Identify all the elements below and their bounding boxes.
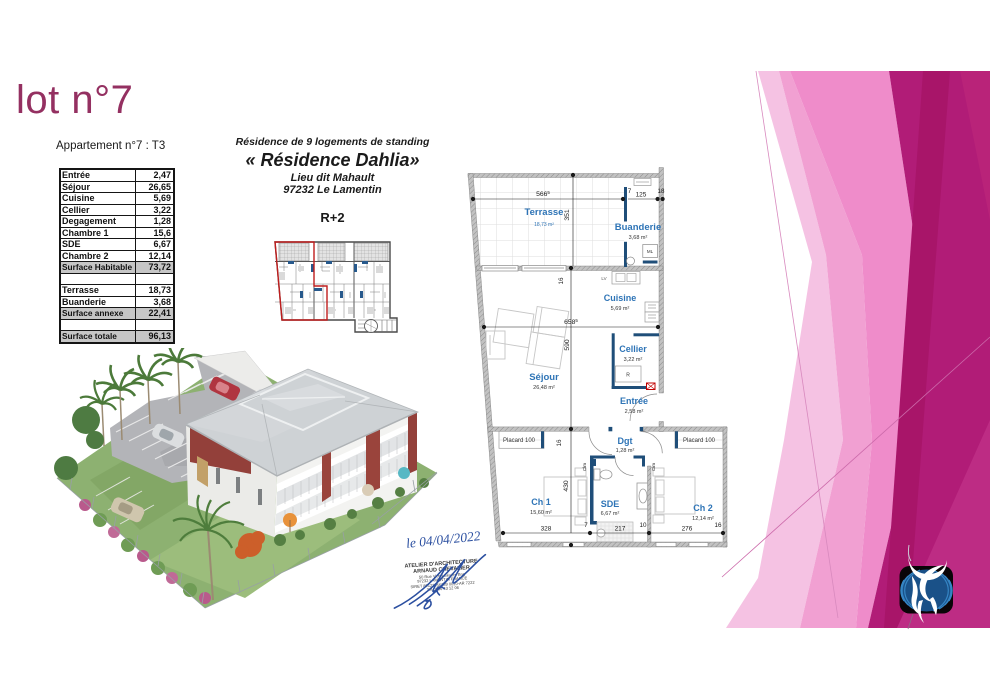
svg-text:Entrée: Entrée	[620, 396, 648, 406]
svg-text:Ch 1: Ch 1	[531, 497, 551, 507]
svg-text:ML: ML	[647, 249, 654, 254]
svg-text:18: 18	[657, 188, 665, 195]
svg-text:LV: LV	[601, 276, 606, 281]
svg-text:Terrasse: Terrasse	[525, 207, 564, 218]
svg-text:Ch 2: Ch 2	[693, 503, 713, 513]
svg-text:15,60 m²: 15,60 m²	[530, 510, 552, 516]
svg-text:276: 276	[682, 526, 693, 533]
svg-text:SDE: SDE	[601, 499, 620, 509]
svg-text:5,69 m²: 5,69 m²	[611, 306, 630, 312]
svg-text:26,48 m²: 26,48 m²	[533, 385, 555, 391]
svg-text:Buanderie: Buanderie	[615, 222, 661, 233]
svg-text:7: 7	[584, 522, 588, 529]
svg-text:Cellier: Cellier	[619, 344, 647, 354]
svg-text:Clm: Clm	[651, 463, 656, 471]
svg-text:3,22 m²: 3,22 m²	[624, 357, 643, 363]
svg-text:2,58 m²: 2,58 m²	[625, 409, 644, 415]
svg-text:16: 16	[714, 522, 722, 529]
svg-text:16: 16	[558, 277, 565, 285]
svg-text:16: 16	[556, 439, 563, 447]
svg-text:Cuisine: Cuisine	[604, 293, 637, 303]
svg-text:Dgt: Dgt	[618, 436, 633, 446]
svg-text:R: R	[626, 373, 630, 379]
svg-text:217: 217	[615, 526, 626, 533]
svg-text:590: 590	[564, 339, 571, 351]
svg-text:125: 125	[636, 192, 647, 199]
svg-text:6,67 m²: 6,67 m²	[601, 511, 620, 517]
svg-text:328: 328	[541, 526, 552, 533]
svg-text:1,28 m²: 1,28 m²	[616, 448, 635, 454]
svg-text:10: 10	[639, 522, 647, 529]
svg-text:Séjour: Séjour	[529, 372, 559, 383]
svg-text:3,68 m²: 3,68 m²	[629, 235, 648, 241]
svg-text:18,73 m²: 18,73 m²	[534, 222, 554, 228]
svg-text:7: 7	[628, 188, 632, 195]
svg-text:6585: 6585	[564, 318, 578, 326]
svg-text:Clm: Clm	[582, 463, 587, 471]
svg-text:12,14 m²: 12,14 m²	[692, 516, 714, 522]
svg-text:351: 351	[564, 209, 571, 221]
svg-text:430: 430	[563, 480, 570, 492]
svg-text:Placard 100: Placard 100	[683, 438, 716, 444]
svg-text:Placard 100: Placard 100	[503, 438, 536, 444]
